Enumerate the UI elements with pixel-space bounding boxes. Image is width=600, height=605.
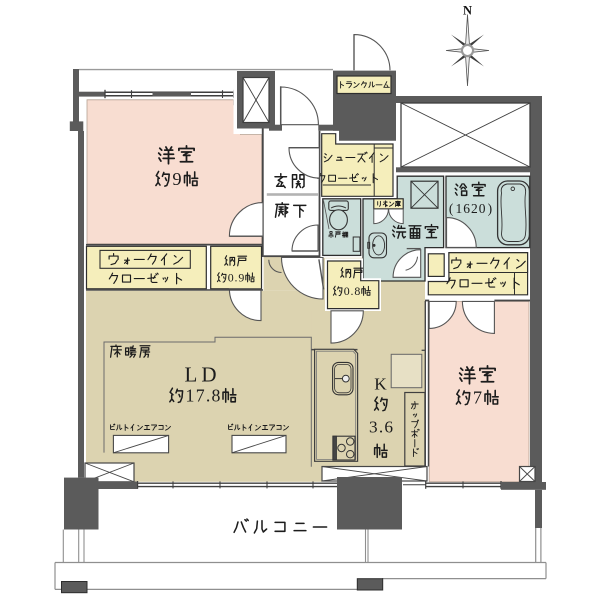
svg-text:9: 9 — [238, 270, 244, 284]
svg-text:0: 0 — [344, 284, 350, 298]
svg-text:.: . — [351, 284, 354, 298]
svg-text:9: 9 — [172, 169, 181, 189]
svg-text:8: 8 — [212, 385, 221, 405]
svg-text:6: 6 — [384, 418, 393, 437]
svg-text:1: 1 — [186, 385, 195, 405]
svg-text:1: 1 — [456, 201, 463, 216]
svg-text:): ) — [488, 201, 493, 216]
svg-text:.: . — [379, 418, 383, 437]
svg-text:.: . — [235, 270, 238, 284]
svg-text:LD: LD — [185, 363, 221, 387]
svg-text:8: 8 — [354, 284, 360, 298]
svg-text:3: 3 — [369, 418, 378, 437]
svg-text:(: ( — [449, 201, 454, 216]
svg-text:2: 2 — [471, 201, 478, 216]
svg-text:7: 7 — [473, 387, 482, 407]
svg-text:.: . — [206, 385, 210, 405]
svg-text:7: 7 — [196, 385, 205, 405]
svg-text:0: 0 — [479, 201, 486, 216]
svg-text:6: 6 — [463, 201, 470, 216]
svg-text:K: K — [374, 375, 387, 394]
svg-text:0: 0 — [228, 270, 234, 284]
